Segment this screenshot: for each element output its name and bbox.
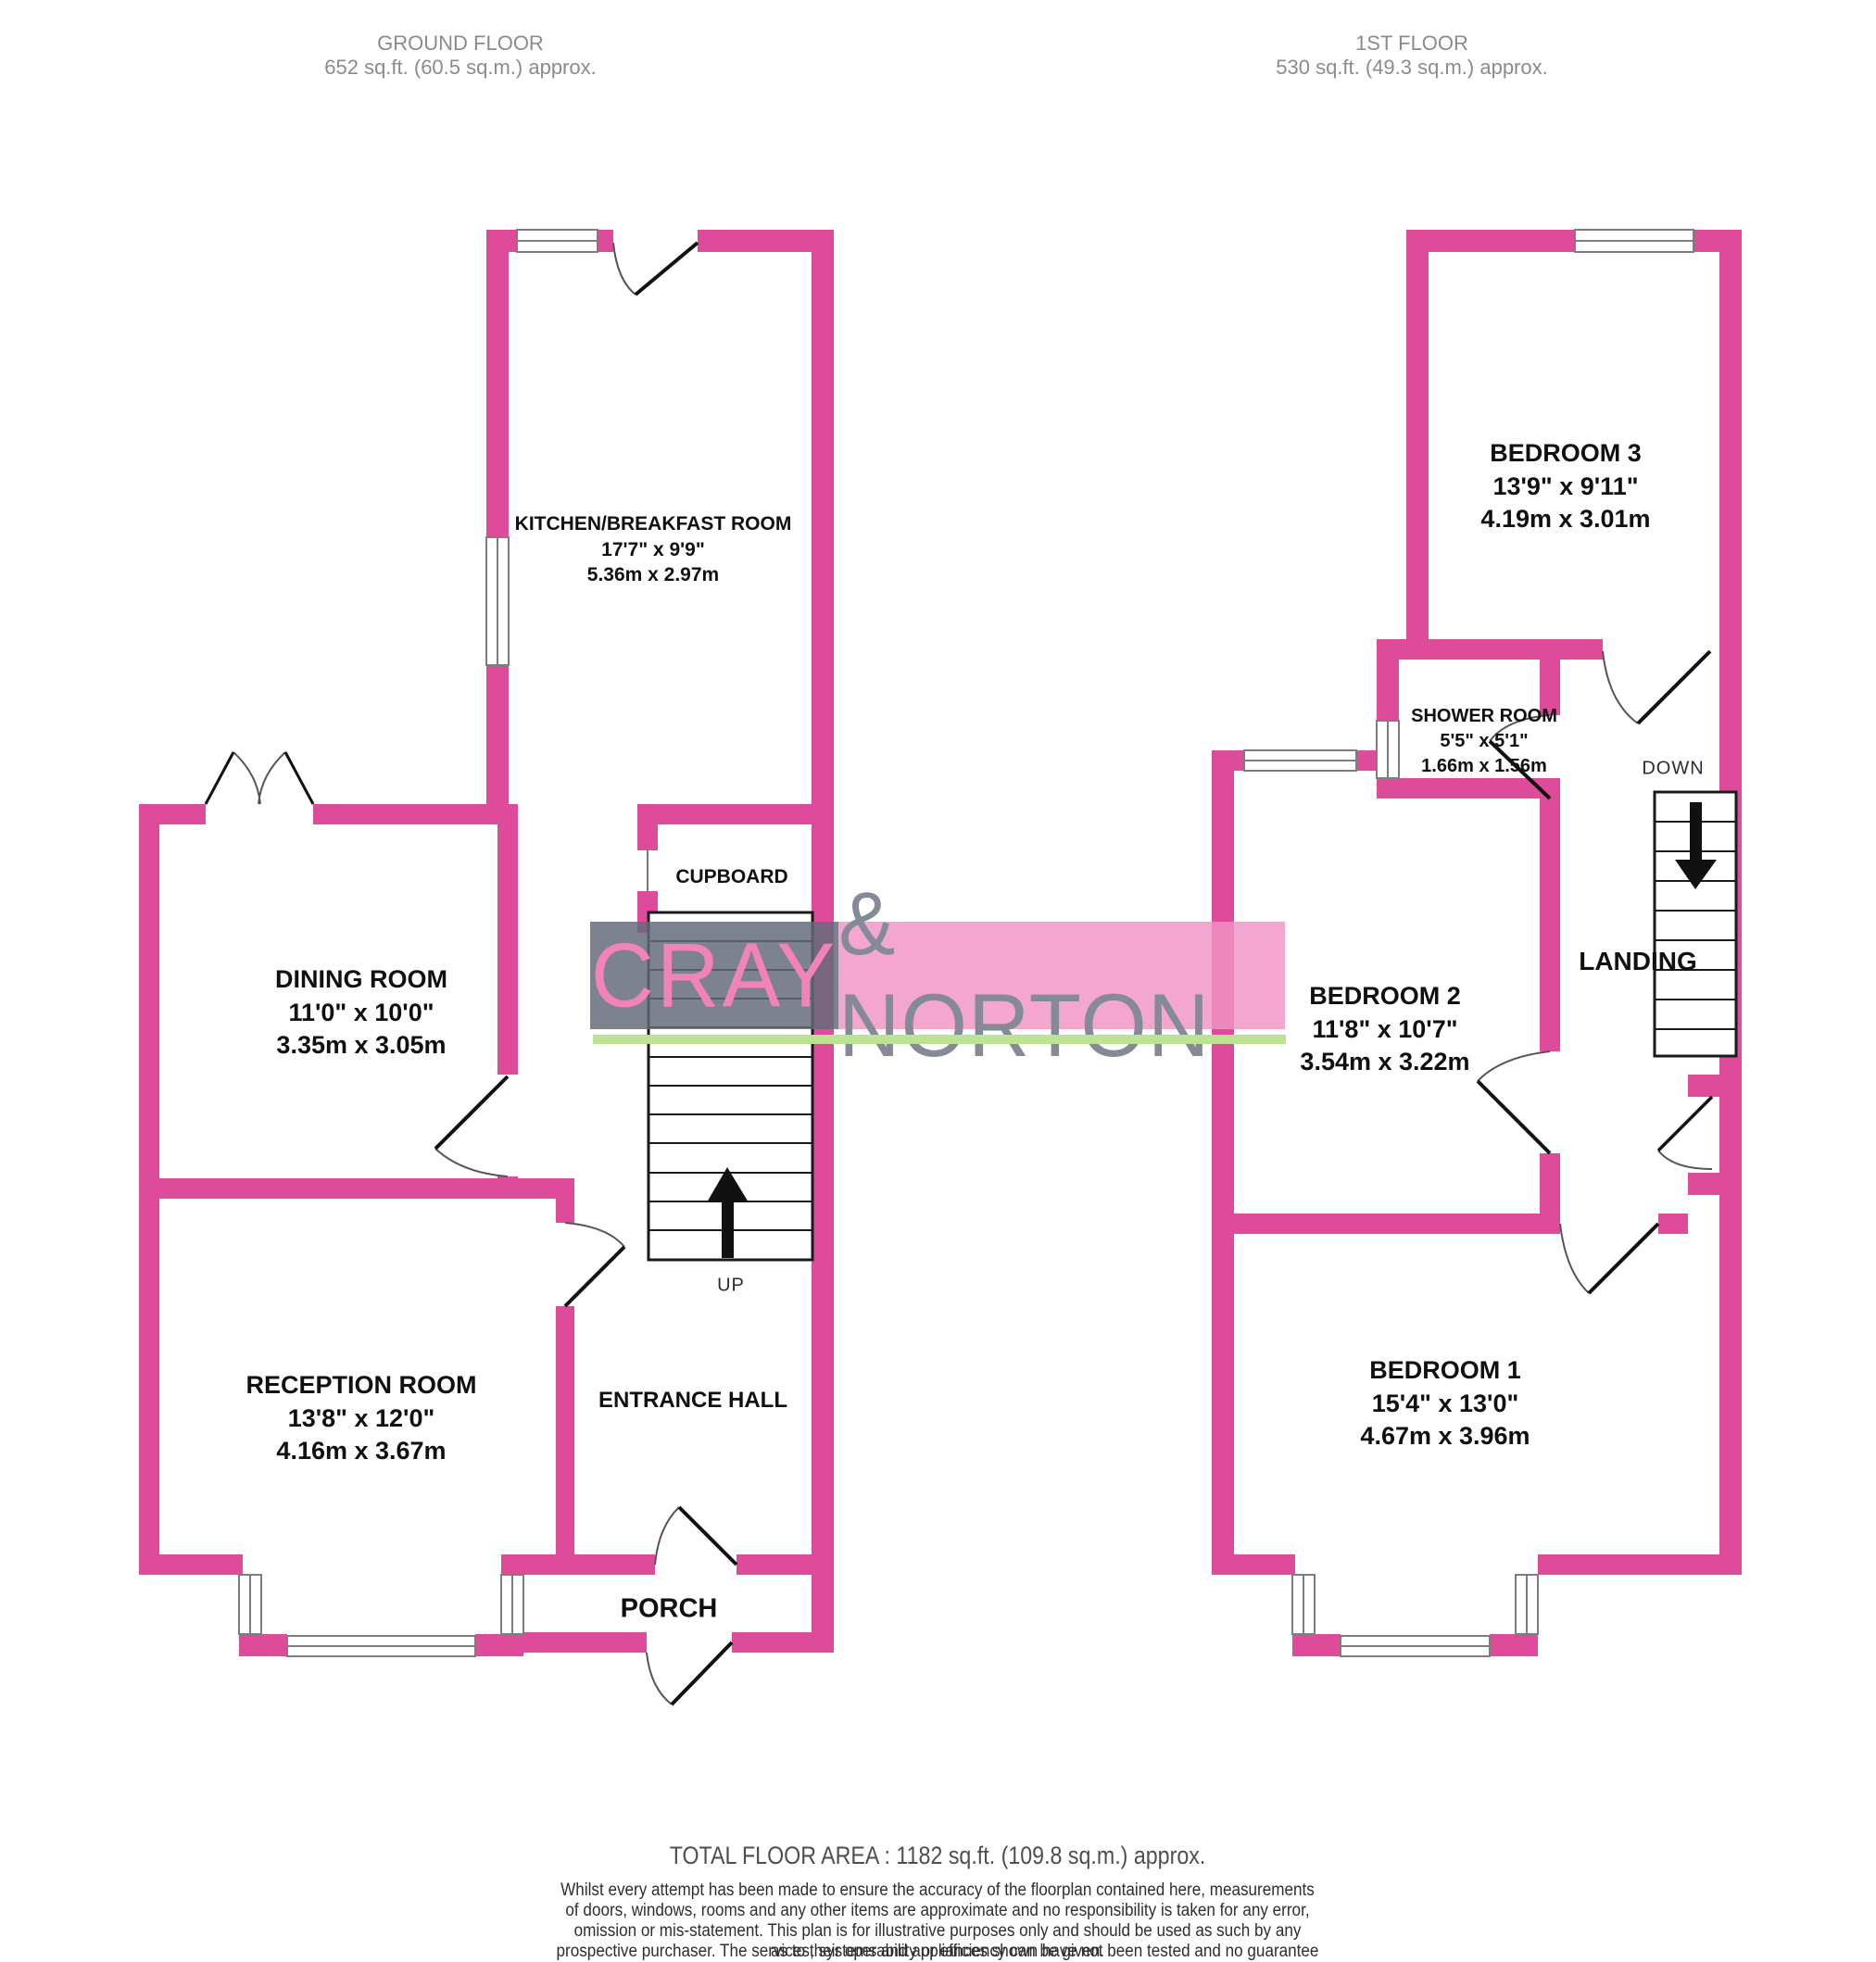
label-bedroom-2: BEDROOM 2 11'8" x 10'7" 3.54m x 3.22m [1300, 980, 1469, 1079]
room-name: SHOWER ROOM [1411, 704, 1557, 729]
room-dims-imperial: 5'5" x 5'1" [1411, 729, 1557, 754]
room-dims-imperial: 13'9" x 9'11" [1480, 471, 1650, 504]
down-arrow-shaft [1690, 802, 1702, 862]
watermark-norton-text: & NORTON [838, 874, 1285, 1078]
watermark-cray-text: CRAY [591, 923, 837, 1027]
label-kitchen: KITCHEN/BREAKFAST ROOM 17'7" x 9'9" 5.36… [515, 511, 792, 588]
room-dims-imperial: 11'8" x 10'7" [1300, 1013, 1469, 1047]
first-floor-title: 1ST FLOOR [1276, 31, 1547, 56]
disclaimer-line: as to their operability or efficiency ca… [771, 1942, 1104, 1962]
room-dims-metric: 4.67m x 3.96m [1360, 1420, 1530, 1453]
room-dims-metric: 3.54m x 3.22m [1300, 1046, 1469, 1079]
label-bedroom-3: BEDROOM 3 13'9" x 9'11" 4.19m x 3.01m [1480, 437, 1650, 536]
room-dims-imperial: 13'8" x 12'0" [246, 1402, 476, 1436]
label-up: UP [717, 1276, 745, 1297]
label-dining-room: DINING ROOM 11'0" x 10'0" 3.35m x 3.05m [275, 963, 447, 1063]
disclaimer-line: omission or mis-statement. This plan is … [574, 1921, 1302, 1942]
up-arrow-shaft [722, 1201, 734, 1258]
room-dims-metric: 4.19m x 3.01m [1480, 503, 1650, 536]
label-entrance-hall: ENTRANCE HALL [598, 1388, 787, 1414]
room-name: RECEPTION ROOM [246, 1369, 476, 1402]
room-dims-metric: 5.36m x 2.97m [515, 562, 792, 588]
floorplan-page: GROUND FLOOR 652 sq.ft. (60.5 sq.m.) app… [0, 0, 1876, 1962]
room-name: BEDROOM 1 [1360, 1354, 1530, 1388]
ground-floor-area: 652 sq.ft. (60.5 sq.m.) approx. [324, 56, 596, 80]
disclaimer-line: Whilst every attempt has been made to en… [560, 1880, 1315, 1901]
room-name: KITCHEN/BREAKFAST ROOM [515, 511, 792, 537]
ground-floor-header: GROUND FLOOR 652 sq.ft. (60.5 sq.m.) app… [324, 31, 596, 80]
label-landing: LANDING [1579, 947, 1697, 976]
room-dims-imperial: 11'0" x 10'0" [275, 997, 447, 1030]
watermark-cray-box: CRAY [590, 922, 838, 1029]
total-floor-area: TOTAL FLOOR AREA : 1182 sq.ft. (109.8 sq… [670, 1842, 1206, 1870]
room-dims-imperial: 17'7" x 9'9" [515, 537, 792, 563]
first-floor-header: 1ST FLOOR 530 sq.ft. (49.3 sq.m.) approx… [1276, 31, 1547, 80]
label-reception-room: RECEPTION ROOM 13'8" x 12'0" 4.16m x 3.6… [246, 1369, 476, 1468]
label-down: DOWN [1642, 759, 1704, 780]
label-cupboard: CUPBOARD [675, 866, 787, 888]
room-dims-metric: 4.16m x 3.67m [246, 1435, 476, 1468]
ground-floor-title: GROUND FLOOR [324, 31, 596, 56]
label-porch: PORCH [621, 1594, 718, 1625]
disclaimer-line: of doors, windows, rooms and any other i… [565, 1901, 1309, 1921]
room-name: DINING ROOM [275, 963, 447, 997]
first-floor-area: 530 sq.ft. (49.3 sq.m.) approx. [1276, 56, 1547, 80]
label-bedroom-1: BEDROOM 1 15'4" x 13'0" 4.67m x 3.96m [1360, 1354, 1530, 1453]
watermark-underline [593, 1035, 1286, 1044]
room-name: BEDROOM 3 [1480, 437, 1650, 471]
stairs-down [1655, 792, 1736, 1056]
room-name: BEDROOM 2 [1300, 980, 1469, 1013]
room-dims-metric: 3.35m x 3.05m [275, 1029, 447, 1063]
room-dims-metric: 1.66m x 1.56m [1411, 754, 1557, 779]
label-shower-room: SHOWER ROOM 5'5" x 5'1" 1.66m x 1.56m [1411, 704, 1557, 779]
watermark-norton-box: & NORTON [838, 922, 1285, 1029]
room-dims-imperial: 15'4" x 13'0" [1360, 1388, 1530, 1421]
